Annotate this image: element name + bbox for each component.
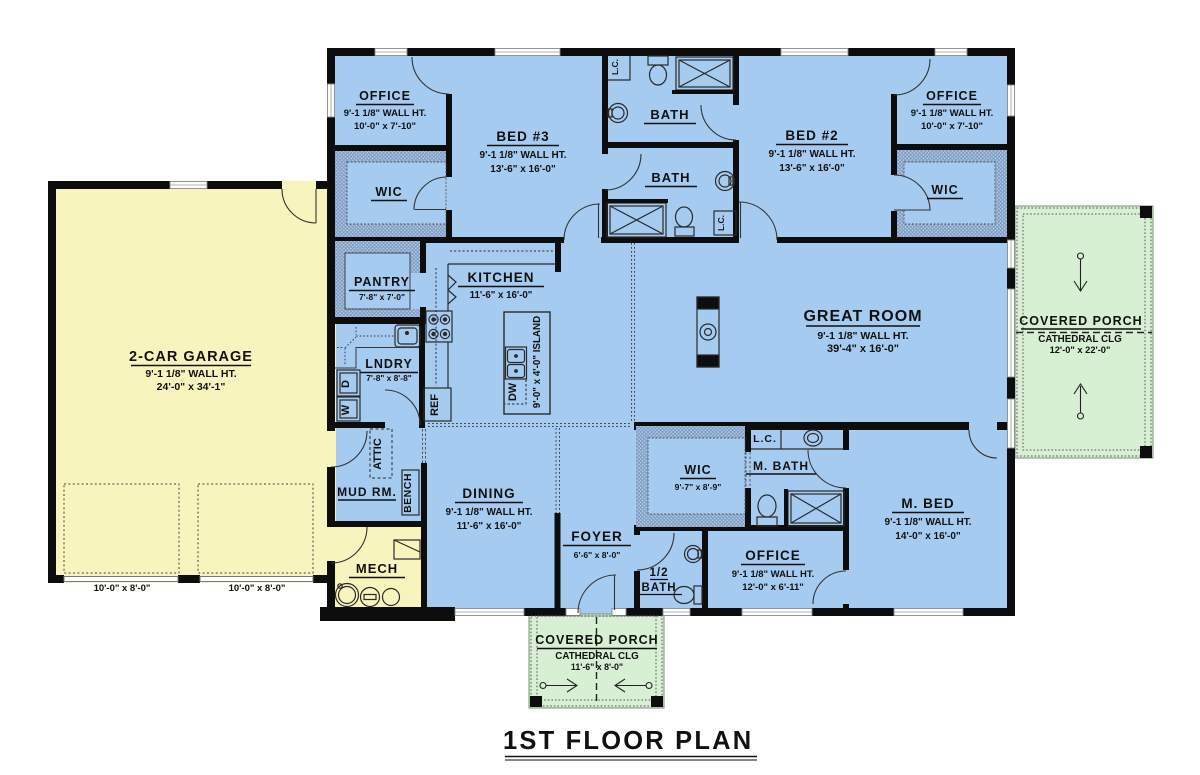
svg-text:WIC: WIC	[684, 463, 711, 477]
svg-text:9'-7" x 8'-9": 9'-7" x 8'-9"	[675, 482, 722, 492]
svg-text:39'-4" x 16'-0": 39'-4" x 16'-0"	[827, 343, 899, 355]
svg-text:24'-0" x 34'-1": 24'-0" x 34'-1"	[157, 381, 226, 393]
svg-text:CATHEDRAL CLG: CATHEDRAL CLG	[1038, 334, 1122, 345]
svg-text:COVERED PORCH: COVERED PORCH	[535, 633, 658, 647]
svg-text:BATH: BATH	[651, 170, 690, 185]
svg-text:9'-1 1/8" WALL HT.: 9'-1 1/8" WALL HT.	[817, 330, 908, 342]
svg-text:DINING: DINING	[462, 486, 515, 501]
svg-text:W: W	[340, 404, 352, 415]
svg-text:9'-1 1/8" WALL HT.: 9'-1 1/8" WALL HT.	[344, 108, 427, 119]
svg-text:9'-1 1/8" WALL HT.: 9'-1 1/8" WALL HT.	[732, 569, 815, 580]
svg-text:12'-0" x 22'-0": 12'-0" x 22'-0"	[1050, 345, 1111, 355]
svg-text:2-CAR GARAGE: 2-CAR GARAGE	[129, 349, 253, 365]
svg-text:MUD RM.: MUD RM.	[337, 485, 397, 499]
svg-text:9'-0" x 4'-0" ISLAND: 9'-0" x 4'-0" ISLAND	[532, 316, 543, 408]
svg-text:9'-1 1/8" WALL HT.: 9'-1 1/8" WALL HT.	[446, 507, 533, 518]
svg-text:CATHEDRAL CLG: CATHEDRAL CLG	[555, 651, 639, 662]
svg-text:BENCH: BENCH	[402, 473, 414, 513]
svg-text:13'-6" x 16'-0": 13'-6" x 16'-0"	[779, 163, 845, 174]
svg-text:PANTRY: PANTRY	[354, 275, 410, 289]
svg-text:1/2: 1/2	[650, 567, 669, 579]
svg-text:KITCHEN: KITCHEN	[468, 270, 535, 285]
svg-text:OFFICE: OFFICE	[926, 89, 978, 103]
svg-text:9'-1 1/8" WALL HT.: 9'-1 1/8" WALL HT.	[885, 517, 972, 528]
svg-text:OFFICE: OFFICE	[745, 548, 801, 563]
svg-text:13'-6" x 16'-0": 13'-6" x 16'-0"	[490, 164, 556, 175]
svg-text:7'-8" x 7'-0": 7'-8" x 7'-0"	[359, 292, 405, 302]
svg-text:FOYER: FOYER	[571, 529, 623, 544]
svg-text:MECH: MECH	[356, 561, 398, 576]
svg-text:L.C.: L.C.	[716, 215, 726, 231]
svg-text:GREAT ROOM: GREAT ROOM	[803, 308, 922, 325]
svg-text:WIC: WIC	[375, 185, 402, 199]
svg-text:7'-8" x 8'-8": 7'-8" x 8'-8"	[366, 373, 411, 383]
svg-text:LNDRY: LNDRY	[365, 357, 413, 371]
svg-text:DW: DW	[507, 382, 519, 401]
svg-text:BATH: BATH	[650, 107, 689, 122]
svg-text:REF: REF	[429, 394, 441, 416]
svg-text:9'-1 1/8" WALL HT.: 9'-1 1/8" WALL HT.	[911, 108, 994, 119]
svg-text:14'-0" x 16'-0": 14'-0" x 16'-0"	[895, 531, 961, 542]
svg-text:OFFICE: OFFICE	[359, 89, 411, 103]
svg-text:11'-6" x 16'-0": 11'-6" x 16'-0"	[457, 521, 522, 532]
svg-text:10'-0" x 8'-0": 10'-0" x 8'-0"	[94, 583, 151, 594]
svg-text:10'-0" x 7'-10": 10'-0" x 7'-10"	[354, 121, 416, 132]
svg-text:11'-6" x 16'-0": 11'-6" x 16'-0"	[470, 290, 533, 301]
svg-text:M. BED: M. BED	[901, 496, 954, 511]
svg-text:1ST FLOOR PLAN: 1ST FLOOR PLAN	[503, 727, 753, 755]
svg-text:BED #2: BED #2	[785, 128, 838, 143]
svg-text:9'-1 1/8" WALL HT.: 9'-1 1/8" WALL HT.	[769, 149, 856, 160]
svg-text:9'-1 1/8" WALL HT.: 9'-1 1/8" WALL HT.	[480, 150, 567, 161]
svg-text:COVERED PORCH: COVERED PORCH	[1019, 314, 1142, 328]
svg-text:L.C.: L.C.	[610, 59, 620, 75]
svg-text:BED #3: BED #3	[496, 129, 549, 144]
svg-text:6'-6" x 8'-0": 6'-6" x 8'-0"	[574, 550, 621, 560]
svg-text:10'-0" x 8'-0": 10'-0" x 8'-0"	[229, 583, 286, 594]
svg-text:12'-0" x 6'-11": 12'-0" x 6'-11"	[742, 582, 804, 593]
svg-text:ATTIC: ATTIC	[372, 438, 384, 470]
svg-text:9'-1 1/8" WALL HT.: 9'-1 1/8" WALL HT.	[145, 368, 236, 380]
svg-text:WIC: WIC	[931, 183, 958, 197]
svg-text:L.C.: L.C.	[753, 433, 777, 445]
svg-text:BATH: BATH	[641, 582, 676, 594]
svg-text:10'-0" x 7'-10": 10'-0" x 7'-10"	[921, 121, 983, 132]
svg-text:M. BATH: M. BATH	[753, 459, 809, 473]
svg-text:D: D	[340, 380, 352, 388]
svg-text:11'-6" x 8'-0": 11'-6" x 8'-0"	[571, 662, 623, 672]
